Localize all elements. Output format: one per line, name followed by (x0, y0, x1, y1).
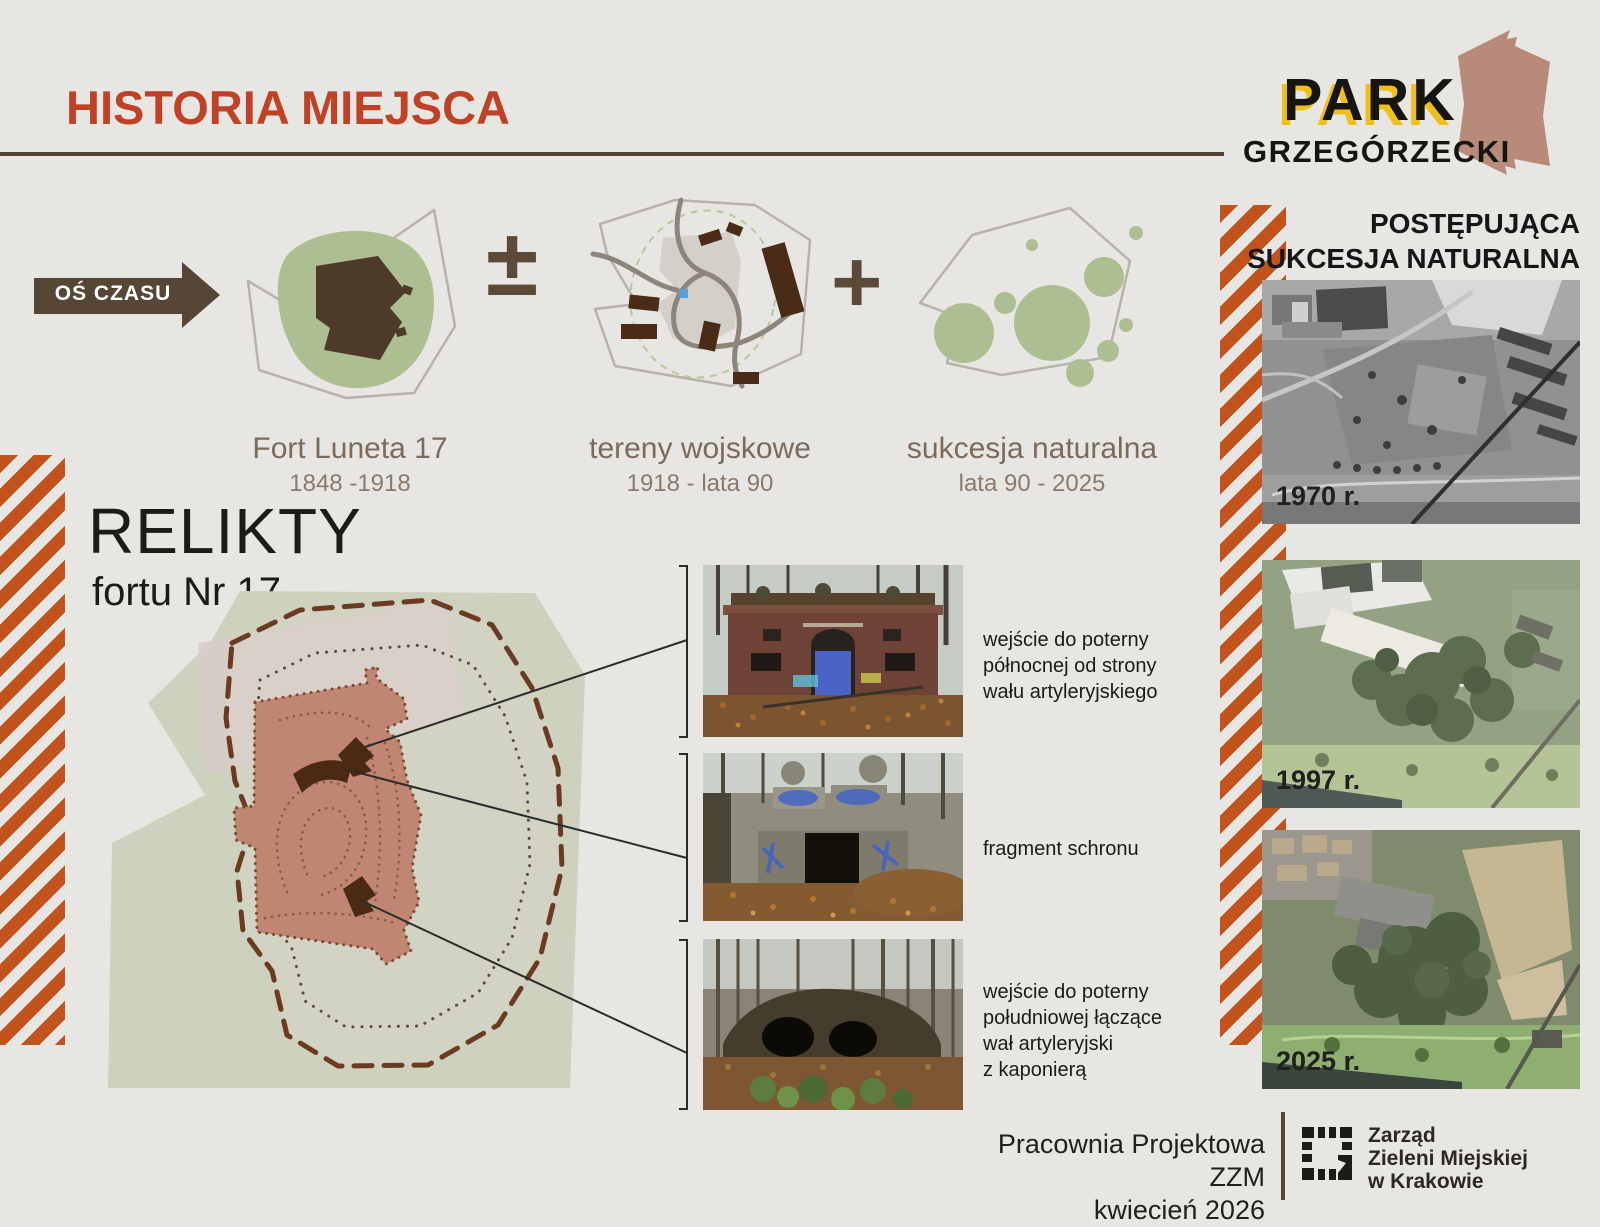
caption-line: fragment schronu (983, 836, 1223, 862)
photo-bunker-fragment (703, 753, 963, 921)
title-divider-rule (0, 152, 1224, 156)
park-logo-wordmark: PARK (1283, 66, 1458, 134)
org-line: w Krakowie (1368, 1170, 1528, 1193)
caption-line: południowej łączące (983, 1005, 1223, 1031)
photo-bunker-fragment-image (703, 753, 963, 921)
stage-name: tereny wojskowe (550, 432, 850, 466)
caption-north-poterna: wejście do poterny północnej od strony w… (983, 627, 1223, 705)
caption-line: z kaponierą (983, 1057, 1223, 1083)
fort-map (55, 578, 705, 1113)
operator-plusminus: ± (486, 216, 538, 311)
aerial-photo-2025: 2025 r. (1262, 830, 1580, 1089)
succession-header-line: POSTĘPUJĄCA (1230, 206, 1580, 241)
footer-separator (1281, 1112, 1285, 1200)
map-fort-footprint (234, 667, 421, 964)
park-logo-subtitle: GRZEGÓRZECKI (1243, 134, 1511, 170)
caption-south-poterna: wejście do poterny południowej łączące w… (983, 979, 1223, 1083)
vegetation-clusters (934, 226, 1143, 387)
operator-plus: + (831, 238, 882, 326)
stage-succession: sukcesja naturalna lata 90 - 2025 (882, 432, 1182, 498)
photo-north-poterna (703, 565, 963, 737)
caption-line: wejście do poterny (983, 627, 1223, 653)
photo-south-poterna (703, 939, 963, 1110)
year-label-1970: 1970 r. (1276, 481, 1360, 512)
stage-name: sukcesja naturalna (882, 432, 1182, 466)
footer-studio: Pracownia Projektowa ZZM (965, 1128, 1265, 1194)
stage-fort-luneta: Fort Luneta 17 1848 -1918 (200, 432, 500, 498)
aerial-photo-1997: 1997 r. (1262, 560, 1580, 808)
footer-credits: Pracownia Projektowa ZZM kwiecień 2026 (965, 1128, 1265, 1227)
year-label-2025: 2025 r. (1276, 1046, 1360, 1077)
org-line: Zarząd (1368, 1124, 1528, 1147)
succession-header: POSTĘPUJĄCA SUKCESJA NATURALNA (1230, 206, 1580, 276)
relikty-title: RELIKTY (88, 494, 362, 568)
diagram-fort-luneta (228, 200, 463, 400)
stage-years: 1918 - lata 90 (550, 470, 850, 498)
diagram-military-grounds (585, 196, 817, 394)
aerial-photo-1970: 1970 r. (1262, 280, 1580, 524)
org-line: Zieleni Miejskiej (1368, 1147, 1528, 1170)
diagram-natural-succession (912, 205, 1152, 395)
photo-south-poterna-image (703, 939, 963, 1110)
footer-date: kwiecień 2026 (965, 1194, 1265, 1227)
zzm-logo-icon (1302, 1127, 1352, 1180)
year-label-1997: 1997 r. (1276, 765, 1360, 796)
timeline-axis-label: OŚ CZASU (48, 282, 178, 306)
page-title: HISTORIA MIEJSCA (66, 80, 510, 135)
stage-name: Fort Luneta 17 (200, 432, 500, 466)
zzm-logo-text: Zarząd Zieleni Miejskiej w Krakowie (1368, 1124, 1528, 1193)
caption-line: wejście do poterny (983, 979, 1223, 1005)
caption-bunker-fragment: fragment schronu (983, 836, 1223, 862)
water-feature (679, 289, 688, 298)
photo-north-poterna-image (703, 565, 963, 737)
caption-line: północnej od strony (983, 653, 1223, 679)
caption-line: wału artyleryjskiego (983, 679, 1223, 705)
caption-line: wał artyleryjski (983, 1031, 1223, 1057)
succession-header-line: SUKCESJA NATURALNA (1230, 241, 1580, 276)
stage-years: lata 90 - 2025 (882, 470, 1182, 498)
stage-military: tereny wojskowe 1918 - lata 90 (550, 432, 850, 498)
